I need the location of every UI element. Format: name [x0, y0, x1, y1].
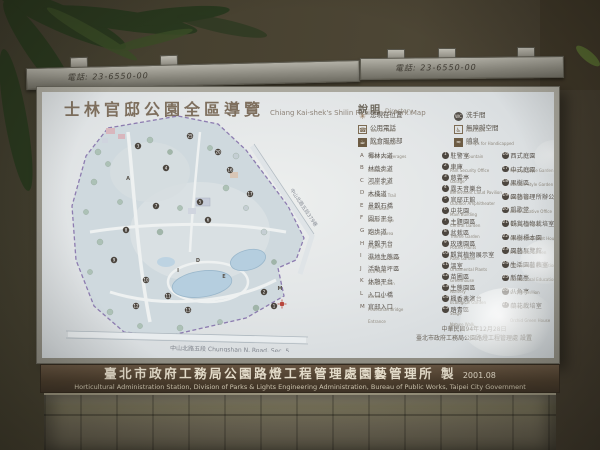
feature-name-en-wrap: Fruit Trees Garden	[510, 241, 554, 245]
feature-letter: B	[360, 165, 366, 171]
legend-label-zh: 洗手間	[466, 112, 499, 119]
phone-note-right: 電話: 23-6550-00	[361, 57, 563, 79]
map-marker: 8	[123, 227, 129, 233]
svg-text:1: 1	[273, 304, 276, 309]
feature-column-lettered: A椰林大道Palm DriveB林蔭步道Green TrailC河岸步道Rive…	[360, 152, 442, 317]
feature-letter: A	[360, 153, 366, 159]
feature-number: 24	[502, 261, 509, 268]
svg-text:10: 10	[143, 278, 149, 283]
feature-name-en: Orchid Green House	[510, 319, 550, 323]
map-marker: 17	[247, 191, 253, 197]
legend-label-en: Public Phone	[370, 142, 395, 146]
feature-letter: K	[360, 278, 366, 284]
feature-name-en: Fruit Trees Garden	[510, 251, 546, 255]
restroom-icon: WC	[454, 112, 463, 121]
road-bottom-label: 中山北路五段 Chungshan N. Road, Sec. 5	[170, 344, 290, 352]
feature-name-en: Entrance	[368, 320, 386, 324]
footer-line-zh: 臺北市政府工務局公園路燈工程管理處園藝管理所 製 2001.08	[41, 366, 559, 383]
feature-letter: J	[360, 266, 366, 272]
legend-item: WC洗手間Restroom	[454, 112, 554, 123]
feature-name-en: Orchid Pavilion	[510, 291, 540, 295]
feature-letter: F	[360, 215, 366, 221]
svg-text:4: 4	[165, 166, 168, 171]
feature-name-en: Park Security Office	[450, 169, 489, 173]
svg-text:E: E	[222, 274, 226, 280]
feature-name-en-wrap: Orchid Green House	[510, 309, 554, 313]
sign-board: 士林官邸公園全區導覽Chiang Kai-shek's Shilin Resid…	[36, 86, 560, 364]
svg-text:5: 5	[199, 200, 202, 205]
feature-name-en: Nursery	[450, 290, 466, 294]
feature-number: 1	[442, 152, 449, 159]
feature-name-en: Pedestrian Bridge	[368, 308, 403, 312]
feature-letter: G	[360, 228, 366, 234]
svg-text:12: 12	[133, 304, 139, 309]
map-marker: 12	[133, 303, 139, 309]
feature-name-en: Horticultural Exhibition Hall	[510, 264, 554, 268]
feature-number: 7	[442, 218, 449, 225]
feature-name-en-wrap: Palm Drive	[368, 159, 442, 163]
leaf-right	[573, 43, 600, 70]
svg-text:A: A	[126, 176, 130, 182]
feature-number: 11	[442, 262, 449, 269]
feature-name-en-wrap: Chinese Style Garden	[510, 173, 554, 177]
feature-name-en: Jogging Trail	[368, 245, 392, 249]
svg-text:7: 7	[155, 204, 158, 209]
feature-lists: A椰林大道Palm DriveB林蔭步道Green TrailC河岸步道Rive…	[360, 152, 554, 317]
map-marker: M	[278, 286, 283, 292]
map-marker: 5	[197, 199, 203, 205]
feature-name-en: Administrative Office	[510, 210, 552, 214]
feature-name-en: Victory Chapel	[510, 223, 539, 227]
feature-name-en-wrap: Horticultural Education Classroom	[510, 268, 554, 272]
feature-name-en: Boardwalk	[368, 207, 389, 211]
feature-item-line: 1駐警室	[442, 152, 502, 159]
feature-number: 20	[502, 207, 509, 214]
feature-number: 21	[502, 220, 509, 227]
feature-name-en: Central Garden	[450, 224, 480, 228]
feature-number: 4	[442, 185, 449, 192]
map-marker: A	[126, 176, 130, 182]
ramp-icon: ♿	[454, 125, 463, 134]
svg-text:16: 16	[227, 168, 233, 173]
feature-column-numbered-1: 1駐警室Park Security Office2車庫Garage3慈雲亭Ben…	[442, 152, 502, 317]
feature-item-line: A椰林大道	[360, 152, 442, 159]
sign-pedestal	[44, 393, 556, 450]
fountain-icon: ≈	[454, 138, 463, 147]
map-marker: 25	[187, 133, 193, 139]
feature-number: 15	[442, 306, 449, 313]
svg-text:D: D	[196, 258, 200, 264]
feature-number: 9	[442, 240, 449, 247]
map-marker: 7	[153, 203, 159, 209]
feature-name-en: Green Trail	[368, 182, 390, 186]
feature-number: 26	[502, 288, 509, 295]
feature-number: 2	[442, 163, 449, 170]
feature-number: 16	[502, 152, 509, 159]
feature-number: 19	[502, 193, 509, 200]
legend-label-en: Ramps for Handicapped	[466, 142, 514, 146]
feature-name-en-wrap: Western Style Garden	[510, 159, 554, 163]
svg-text:6: 6	[207, 218, 210, 223]
feature-name-en: Fruit Trees	[510, 196, 531, 200]
setup-by: 臺北市政府工務局公園路燈工程管理處 設置	[394, 335, 554, 344]
feature-name-en: Greenhouse	[450, 279, 474, 283]
feature-name-en: Theme Garden	[450, 235, 480, 239]
top-rail-right: 電話: 23-6550-00	[360, 56, 564, 80]
feature-number: 23	[502, 247, 509, 254]
feature-name-en: Chinese Style Garden	[510, 183, 553, 187]
feature-column-numbered-2: 16西式庭園Western Style Garden17中式庭園Chinese …	[502, 152, 554, 317]
glossary-heading: 說明Directory	[358, 98, 554, 110]
map-marker: D	[196, 258, 200, 264]
feature-name-en: Ornamental Plants	[450, 268, 487, 272]
svg-text:17: 17	[247, 192, 253, 197]
glossary-legend: ✳您現在位置You Are HereWC洗手間Restroom☎公用電話Publ…	[358, 112, 554, 149]
you-are-here-marker	[278, 300, 287, 309]
map-marker: 11	[165, 293, 171, 299]
feature-name-en: Rose Garden	[450, 257, 475, 261]
setup-note: 中華民國94年12月28日 臺北市政府工務局公園路燈工程管理處 設置	[394, 326, 554, 343]
feature-number: 12	[442, 273, 449, 280]
feature-name-en: Western Style Garden	[510, 169, 554, 173]
map-marker: 9	[111, 257, 117, 263]
you-are-here-icon: ✳	[358, 112, 367, 121]
map-marker: 1	[271, 303, 277, 309]
feature-name-en: Eco Pond	[368, 270, 386, 274]
map-marker: 6	[205, 217, 211, 223]
footer-date: 2001.08	[463, 371, 496, 380]
footer-band: 臺北市政府工務局公園路燈工程管理處園藝管理所 製 2001.08 Horticu…	[40, 364, 560, 393]
feature-item-line: 16西式庭園	[502, 152, 554, 159]
footer-maker: 臺北市政府工務局公園路燈工程管理處園藝管理所 製	[104, 366, 456, 381]
feature-letter: I	[360, 253, 366, 259]
feature-name-en: Horticultural Education Classroom	[510, 278, 554, 282]
map-marker: 3	[135, 143, 141, 149]
map-marker: 10	[143, 277, 149, 283]
directory-panel: 說明Directory ✳您現在位置You Are HereWC洗手間Restr…	[358, 98, 554, 358]
map-marker: 2	[261, 289, 267, 295]
feature-name-en: Riverside Trail	[368, 194, 396, 198]
svg-text:25: 25	[187, 134, 193, 139]
map-marker: 4	[163, 165, 169, 171]
feature-name-en: Stage	[450, 312, 462, 316]
feature-number: 18	[502, 179, 509, 186]
feature-name-en: Pavilion	[510, 305, 525, 309]
feature-name-en-wrap: Ornamental Plant House	[510, 227, 554, 231]
feature-name-en: Stone Bridge	[368, 219, 394, 223]
feature-number: 10	[442, 251, 449, 258]
feature-number: 8	[442, 229, 449, 236]
feature-name-en: Activity Lawn	[368, 282, 395, 286]
svg-text:11: 11	[165, 294, 171, 299]
feature-letter: C	[360, 178, 366, 184]
photo-of-park-sign: 電話: 23-6550-00 電話: 23-6550-00 士林官邸公園全區導覽…	[0, 0, 600, 450]
svg-text:20: 20	[215, 150, 221, 155]
legend-label-en: Restroom	[466, 129, 485, 133]
svg-text:3: 3	[137, 144, 140, 149]
map-marker: 20	[215, 149, 221, 155]
feature-number: 27	[502, 302, 509, 309]
feature-number: 17	[502, 166, 509, 173]
feature-name-en: Ecological Garden	[450, 301, 486, 305]
map-marker: E	[222, 274, 226, 280]
feature-letter: L	[360, 291, 366, 297]
food-icon: ☕	[358, 138, 367, 147]
footer-line-en: Horticultural Administration Station, Di…	[41, 383, 559, 391]
feature-number: 6	[442, 207, 449, 214]
feature-name-en: Benevolent Cloud Pavilion	[450, 191, 502, 195]
feature-item: 16西式庭園Western Style Garden	[502, 152, 554, 166]
svg-text:M: M	[278, 286, 283, 292]
road-bottom	[66, 331, 308, 344]
feature-name-en: Outdoor Amphitheater	[450, 202, 495, 206]
feature-number: 14	[442, 295, 449, 302]
feature-name-en: Main Building	[450, 213, 477, 217]
svg-text:9: 9	[113, 258, 116, 263]
feature-name-en: Activity Area	[368, 232, 393, 236]
feature-number: 22	[502, 234, 509, 241]
feature-number: 13	[442, 284, 449, 291]
feature-name-en: Ground Lookout	[368, 257, 400, 261]
feature-name-en: Potted Plants	[450, 246, 476, 250]
public-phone-icon: ☎	[358, 125, 367, 134]
map-marker: 16	[227, 167, 233, 173]
lawn-area	[110, 142, 190, 202]
feature-name-en: Benches	[368, 295, 385, 299]
feature-name-en-wrap: Pavilion	[510, 295, 554, 299]
map-marker: 13	[185, 307, 191, 313]
feature-number: 25	[502, 275, 509, 282]
feature-name-en: Garage	[450, 180, 465, 184]
feature-name-en-wrap: Administrative Office	[510, 200, 554, 204]
svg-text:I: I	[177, 268, 179, 274]
feature-name-en: Palm Drive	[368, 169, 390, 173]
feature-number: 5	[442, 196, 449, 203]
legend-item: ✳您現在位置You Are Here	[358, 112, 454, 123]
feature-letter: H	[360, 241, 366, 247]
svg-text:8: 8	[125, 228, 128, 233]
feature-number: 3	[442, 174, 449, 181]
svg-text:2: 2	[263, 290, 266, 295]
feature-name-en: Ornamental Plant House	[510, 237, 554, 241]
feature-letter: E	[360, 203, 366, 209]
sign-board-face: 士林官邸公園全區導覽Chiang Kai-shek's Shilin Resid…	[42, 92, 554, 358]
svg-text:13: 13	[185, 308, 191, 313]
feature-letter: M	[360, 304, 366, 310]
setup-date: 中華民國94年12月28日	[394, 326, 554, 335]
feature-letter: D	[360, 190, 366, 196]
map-marker: I	[177, 268, 179, 274]
legend-label-zh: 您現在位置	[370, 112, 415, 119]
park-map: 中山北路五段 Chungshan N. Road, Sec. 5 中山北路五段3…	[50, 112, 352, 352]
legend-label-en: You Are Here	[370, 129, 396, 133]
